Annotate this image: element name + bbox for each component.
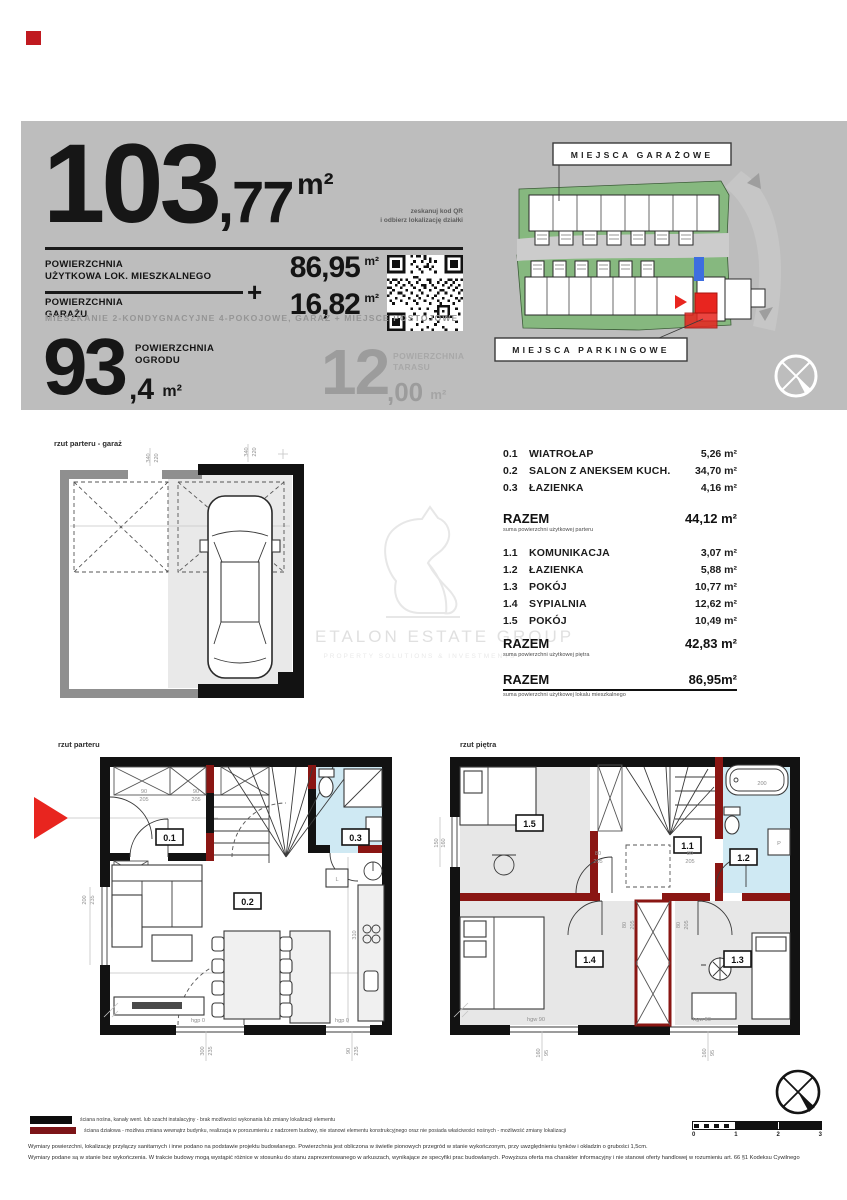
toilet-icon	[724, 807, 740, 834]
red-corner-marker	[26, 31, 41, 45]
room-label-1-5: 1.5	[516, 815, 543, 831]
scale-segment-2	[735, 1122, 777, 1129]
svg-text:80: 80	[676, 922, 682, 928]
svg-text:235: 235	[90, 895, 96, 904]
svg-text:160: 160	[536, 1048, 542, 1057]
unit-red-marker	[695, 293, 717, 313]
scale-segment-3	[778, 1122, 821, 1129]
table-row: 1.4SYPIALNIA12,62 m²	[503, 598, 737, 611]
svg-text:rzut piętra: rzut piętra	[460, 740, 497, 749]
svg-text:160: 160	[441, 838, 447, 847]
compass-icon	[776, 356, 816, 396]
svg-text:rzut parteru: rzut parteru	[58, 740, 100, 749]
svg-text:1.4: 1.4	[583, 955, 596, 965]
unit-red-outline	[685, 313, 717, 328]
legend-row-partition: ściana działowa - możliwa zmiana wewnątr…	[30, 1127, 566, 1134]
svg-text:0.2: 0.2	[241, 897, 254, 907]
table-row: 1.3POKÓJ10,77 m²	[503, 581, 737, 594]
disclaimer-line2: Wymiary podane są w stanie bez wykończen…	[28, 1153, 840, 1164]
svg-text:90: 90	[193, 789, 199, 795]
svg-text:205: 205	[685, 859, 694, 865]
svg-text:220: 220	[154, 453, 160, 462]
bathtub-icon	[726, 765, 788, 795]
garden-label: POWIERZCHNIAOGRODU	[135, 343, 214, 367]
footer-compass-icon	[770, 1064, 828, 1122]
usable-area-value: 86,95 m²	[243, 251, 379, 285]
room-schedule: 0.1WIATROŁAP5,26 m² 0.2SALON Z ANEKSEM K…	[503, 448, 737, 698]
svg-text:200: 200	[82, 895, 88, 904]
svg-text:205: 205	[191, 797, 200, 803]
svg-text:90: 90	[346, 1048, 352, 1054]
washer-icon: P	[768, 829, 790, 855]
usable-area-label: POWIERZCHNIA UŻYTKOWA LOK. MIESZKALNEGO	[45, 259, 245, 283]
bed-double	[460, 917, 544, 1009]
watermark-title: ETALON ESTATE GROUP	[315, 627, 525, 647]
svg-text:hgw 90: hgw 90	[693, 1017, 711, 1023]
watermark: ETALON ESTATE GROUP PROPERTY SOLUTIONS &…	[315, 505, 525, 695]
table-row: 0.1WIATROŁAP5,26 m²	[503, 448, 737, 461]
scale-bar: 0123	[692, 1121, 822, 1138]
svg-text:hgp 0: hgp 0	[335, 1018, 349, 1024]
bed-single	[752, 933, 790, 1019]
room-label-0-1: 0.1	[156, 829, 183, 845]
tv-bench	[114, 997, 204, 1015]
room-label-0-2: 0.2	[234, 893, 261, 909]
svg-text:L: L	[335, 877, 338, 883]
site-plan: MIEJSCA GARAŻOWE MIEJSCA PARKINGOWE	[489, 129, 841, 410]
disclaimer: Wymiary powierzchni, lokalizację przyłąc…	[28, 1142, 840, 1164]
car-icon	[200, 496, 280, 678]
table-row: 1.5POKÓJ10,49 m²	[503, 615, 737, 628]
table-row: 0.3ŁAZIENKA4,16 m²	[503, 482, 737, 495]
site-buildings-bottom	[525, 261, 765, 321]
room-label-0-3: 0.3	[342, 829, 369, 845]
legend: ściana nośna, kanały went. lub szacht in…	[30, 1116, 566, 1137]
total-area: 103,77 m²	[43, 129, 334, 239]
svg-text:160: 160	[702, 1048, 708, 1057]
parking-blue-marker	[694, 257, 704, 281]
table-row: 1.2ŁAZIENKA5,88 m²	[503, 564, 737, 577]
svg-text:0.3: 0.3	[349, 833, 362, 843]
svg-text:MIEJSCA GARAŻOWE: MIEJSCA GARAŻOWE	[571, 150, 714, 160]
qr-note: zeskanuj kod QR i odbierz lokalizację dz…	[351, 207, 463, 225]
qr-note-line1: zeskanuj kod QR	[351, 207, 463, 216]
header-band: 103,77 m² zeskanuj kod QR i odbierz loka…	[21, 121, 847, 410]
svg-text:80: 80	[687, 851, 693, 857]
floor-total: RAZEM42,83 m² suma powierzchni użytkowej…	[503, 636, 737, 658]
dresser	[692, 993, 736, 1019]
svg-text:hgp 0: hgp 0	[191, 1018, 205, 1024]
svg-text:1.3: 1.3	[731, 955, 744, 965]
label-divider	[45, 291, 243, 294]
svg-text:200: 200	[757, 781, 766, 787]
terrace-label: POWIERZCHNIATARASU	[393, 351, 464, 373]
svg-text:300: 300	[200, 1046, 206, 1055]
garage-floor-plan: rzut parteru - garaż	[50, 436, 312, 714]
svg-text:235: 235	[354, 1046, 360, 1055]
ground-total: RAZEM44,12 m² suma powierzchni użytkowej…	[503, 511, 737, 533]
sofa	[112, 865, 202, 961]
svg-text:95: 95	[710, 1050, 716, 1056]
svg-text:205: 205	[630, 920, 636, 929]
total-area-dec: ,77	[218, 170, 293, 235]
total-area-unit: m²	[297, 168, 334, 201]
room-label-1-3: 1.3	[724, 951, 751, 967]
legend-swatch-red	[30, 1127, 76, 1134]
qr-note-line2: i odbierz lokalizację działki	[351, 216, 463, 225]
grand-total: RAZEM86,95m² suma powierzchni użytkowej …	[503, 672, 737, 698]
svg-text:80: 80	[622, 922, 628, 928]
scale-labels: 0123	[692, 1132, 822, 1138]
svg-text:hgw 90: hgw 90	[527, 1017, 545, 1023]
upper-floor-plan: rzut piętra	[430, 735, 832, 1067]
garden-area: 93 POWIERZCHNIAOGRODU ,4 m²	[43, 333, 283, 413]
svg-text:310: 310	[352, 930, 358, 939]
svg-text:235: 235	[208, 1046, 214, 1055]
legend-swatch-black	[30, 1116, 72, 1124]
svg-text:1.5: 1.5	[523, 819, 536, 829]
svg-text:205: 205	[684, 920, 690, 929]
ground-floor-plan: rzut parteru	[28, 735, 423, 1067]
disclaimer-line1: Wymiary powierzchni, lokalizację przyłąc…	[28, 1142, 840, 1153]
room-label-1-2: 1.2	[730, 849, 757, 865]
svg-text:95: 95	[544, 1050, 550, 1056]
room-label-1-4: 1.4	[576, 951, 603, 967]
page: 103,77 m² zeskanuj kod QR i odbierz loka…	[0, 0, 847, 1200]
total-area-int: 103	[43, 121, 218, 246]
svg-text:90: 90	[141, 789, 147, 795]
watermark-cat-icon	[360, 505, 480, 623]
header-divider	[45, 247, 463, 250]
svg-text:rzut parteru - garaż: rzut parteru - garaż	[54, 439, 122, 448]
scale-segment-1	[693, 1122, 735, 1129]
shaft	[636, 901, 670, 1025]
label-garage-spots: MIEJSCA GARAŻOWE	[553, 143, 731, 165]
svg-text:150: 150	[434, 838, 440, 847]
svg-text:P: P	[777, 841, 781, 847]
svg-text:0.1: 0.1	[163, 833, 176, 843]
svg-text:MIEJSCA PARKINGOWE: MIEJSCA PARKINGOWE	[512, 345, 669, 355]
svg-text:1.1: 1.1	[681, 841, 694, 851]
svg-text:205: 205	[593, 859, 602, 865]
svg-text:205: 205	[139, 797, 148, 803]
entry-arrow	[34, 797, 68, 839]
watermark-subtitle: PROPERTY SOLUTIONS & INVESTMENTS	[315, 653, 525, 660]
svg-text:220: 220	[252, 447, 258, 456]
stairs	[626, 767, 715, 835]
svg-text:80: 80	[595, 851, 601, 857]
table-row: 1.1KOMUNIKACJA3,07 m²	[503, 547, 737, 560]
table-row: 0.2SALON Z ANEKSEM KUCH.34,70 m²	[503, 465, 737, 478]
svg-text:340: 340	[244, 447, 250, 456]
legend-row-load-bearing: ściana nośna, kanały went. lub szacht in…	[30, 1116, 566, 1124]
label-parking-spots: MIEJSCA PARKINGOWE	[495, 338, 687, 361]
svg-text:1.2: 1.2	[737, 853, 750, 863]
kitchen: L	[290, 862, 384, 1023]
svg-text:340: 340	[146, 453, 152, 462]
dining-table	[212, 931, 292, 1019]
